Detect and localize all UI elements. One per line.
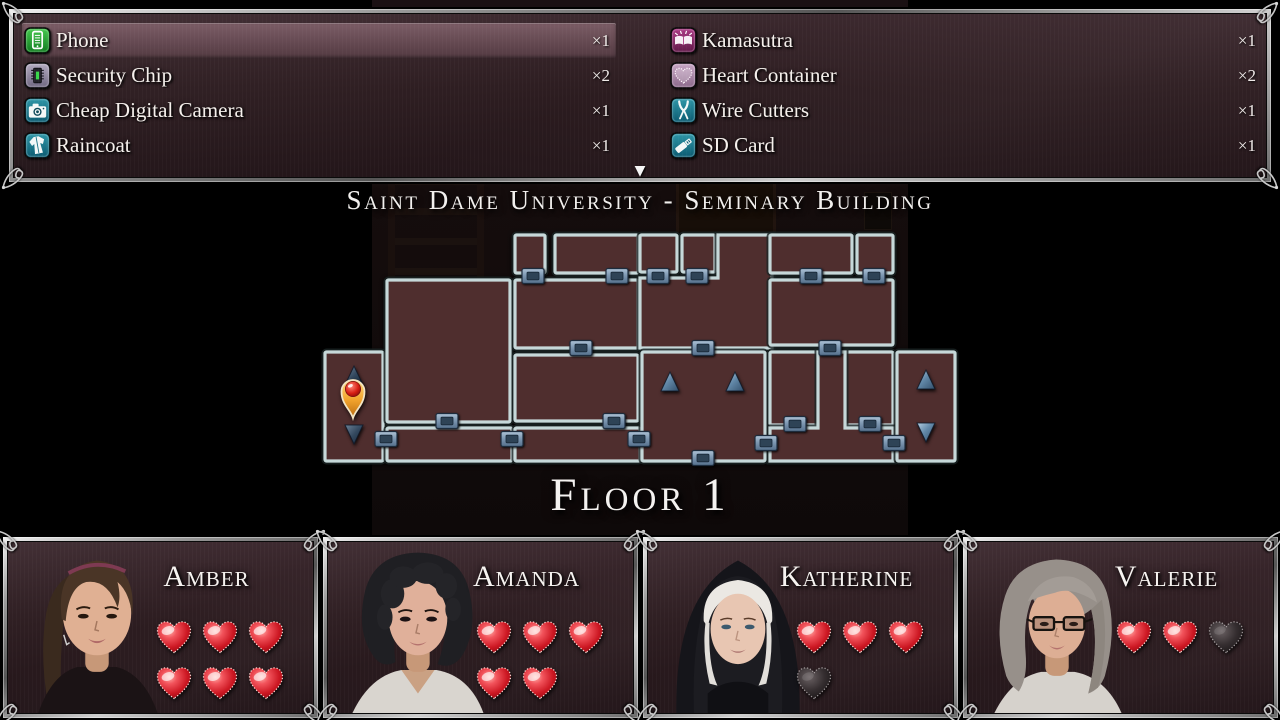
sd-card-icon [670, 132, 697, 159]
heart-full-icon [246, 618, 286, 656]
inventory-item-raincoat[interactable]: Raincoat×1 [22, 128, 616, 163]
inventory-item-count: ×2 [1238, 66, 1256, 86]
character-panel-body: Valerie [967, 541, 1274, 714]
camera-icon [24, 97, 51, 124]
map-room-room-lower-east-2[interactable] [845, 352, 893, 425]
map-room-stair-hall-center[interactable] [642, 352, 765, 461]
map-room-small-room-1[interactable] [515, 235, 545, 273]
inventory-item-count: ×1 [1238, 31, 1256, 51]
map-door-icon [859, 417, 881, 432]
inventory-item-label: Wire Cutters [702, 98, 1238, 123]
heart-full-icon [246, 664, 286, 702]
map-door-icon [375, 432, 397, 447]
inventory-item-count: ×1 [592, 31, 610, 51]
map-door-icon [603, 414, 625, 429]
inventory-item-label: SD Card [702, 133, 1238, 158]
inventory-item-label: Heart Container [702, 63, 1238, 88]
map-room-small-room-4[interactable] [682, 235, 715, 272]
heart-full-icon [1114, 618, 1154, 656]
map-title: Saint Dame University - Seminary Buildin… [0, 185, 1280, 216]
raincoat-icon [24, 132, 51, 159]
map-room-room-lower-east-1[interactable] [770, 352, 818, 425]
map-door-icon [863, 269, 885, 284]
heart-row [474, 664, 610, 702]
floor-map [322, 232, 958, 464]
map-room-small-room-2[interactable] [555, 235, 638, 273]
character-panel-body: Katherine [647, 541, 954, 714]
heart-container-icon [670, 62, 697, 89]
map-room-corridor-west[interactable] [387, 428, 512, 461]
map-door-icon [755, 436, 777, 451]
map-door-icon [647, 269, 669, 284]
character-panel-body: Amanda [327, 541, 634, 714]
map-door-icon [692, 451, 714, 466]
security-chip-icon [24, 62, 51, 89]
scroll-down-indicator-icon[interactable]: ▼ [14, 163, 1266, 178]
affection-hearts [1114, 618, 1250, 664]
inventory-item-security-chip[interactable]: Security Chip×2 [22, 58, 616, 93]
heart-row [154, 618, 290, 656]
heart-full-icon [886, 618, 926, 656]
game-screen: Phone×1Security Chip×2Cheap Digital Came… [0, 0, 1280, 720]
heart-row [1114, 618, 1250, 656]
character-name: Amanda [424, 560, 629, 594]
affection-hearts [154, 618, 290, 710]
inventory-item-sd-card[interactable]: SD Card×1 [668, 128, 1262, 163]
heart-row [794, 618, 930, 656]
map-door-icon [436, 414, 458, 429]
map-door-icon [784, 417, 806, 432]
phone-icon [24, 27, 51, 54]
heart-row [474, 618, 610, 656]
map-room-small-room-5[interactable] [770, 235, 852, 273]
character-panel-amanda[interactable]: Amanda [322, 536, 639, 719]
character-panel-amber[interactable]: Amber [2, 536, 319, 719]
heart-full-icon [520, 664, 560, 702]
inventory-item-kamasutra[interactable]: Kamasutra×1 [668, 23, 1262, 58]
heart-full-icon [200, 618, 240, 656]
inventory-panel-body: Phone×1Security Chip×2Cheap Digital Came… [13, 13, 1267, 178]
inventory-item-count: ×1 [592, 101, 610, 121]
inventory-item-label: Phone [56, 28, 592, 53]
map-door-icon [628, 432, 650, 447]
inventory-item-heart-container[interactable]: Heart Container×2 [668, 58, 1262, 93]
inventory-item-phone[interactable]: Phone×1 [22, 23, 616, 58]
heart-row [154, 664, 290, 702]
character-name: Katherine [744, 560, 949, 594]
heart-full-icon [566, 618, 606, 656]
map-door-icon [692, 341, 714, 356]
map-door-icon [686, 269, 708, 284]
heart-row [794, 664, 930, 702]
map-door-icon [522, 269, 544, 284]
inventory-item-count: ×2 [592, 66, 610, 86]
heart-empty-icon [794, 664, 834, 702]
map-door-icon [570, 341, 592, 356]
kamasutra-icon [670, 27, 697, 54]
map-room-corridor-center[interactable] [515, 428, 640, 461]
heart-full-icon [520, 618, 560, 656]
inventory-item-wire-cutters[interactable]: Wire Cutters×1 [668, 93, 1262, 128]
character-name: Amber [104, 560, 309, 594]
map-door-icon [800, 269, 822, 284]
map-door-icon [819, 341, 841, 356]
inventory-item-count: ×1 [1238, 136, 1256, 156]
heart-full-icon [794, 618, 834, 656]
inventory-item-label: Security Chip [56, 63, 592, 88]
inventory-column-2: Kamasutra×1Heart Container×2Wire Cutters… [668, 23, 1262, 163]
character-name: Valerie [1064, 560, 1269, 594]
heart-full-icon [200, 664, 240, 702]
map-room-stairwell-east[interactable] [897, 352, 955, 461]
heart-empty-icon [1206, 618, 1246, 656]
character-panel-valerie[interactable]: Valerie [962, 536, 1279, 719]
inventory-item-count: ×1 [1238, 101, 1256, 121]
map-room-room-mid-west[interactable] [515, 280, 638, 348]
inventory-panel: Phone×1Security Chip×2Cheap Digital Came… [8, 8, 1272, 183]
map-door-icon [501, 432, 523, 447]
heart-full-icon [1160, 618, 1200, 656]
inventory-item-label: Cheap Digital Camera [56, 98, 592, 123]
map-room-large-room-west[interactable] [387, 280, 510, 422]
map-door-icon [883, 436, 905, 451]
map-room-small-room-3[interactable] [640, 235, 677, 272]
heart-full-icon [474, 618, 514, 656]
heart-full-icon [840, 618, 880, 656]
inventory-item-label: Raincoat [56, 133, 592, 158]
inventory-item-count: ×1 [592, 136, 610, 156]
heart-full-icon [154, 664, 194, 702]
map-room-room-mid-east[interactable] [770, 280, 893, 345]
inventory-item-label: Kamasutra [702, 28, 1238, 53]
affection-hearts [794, 618, 930, 710]
map-room-room-lower-west[interactable] [515, 355, 638, 421]
inventory-column-1: Phone×1Security Chip×2Cheap Digital Came… [22, 23, 616, 163]
heart-full-icon [474, 664, 514, 702]
wire-cutters-icon [670, 97, 697, 124]
inventory-item-cheap-digital-camera[interactable]: Cheap Digital Camera×1 [22, 93, 616, 128]
floor-label: Floor 1 [0, 468, 1280, 522]
affection-hearts [474, 618, 610, 710]
character-panel-katherine[interactable]: Katherine [642, 536, 959, 719]
map-room-small-room-6[interactable] [857, 235, 893, 273]
heart-full-icon [154, 618, 194, 656]
character-panel-body: Amber [7, 541, 314, 714]
map-door-icon [606, 269, 628, 284]
